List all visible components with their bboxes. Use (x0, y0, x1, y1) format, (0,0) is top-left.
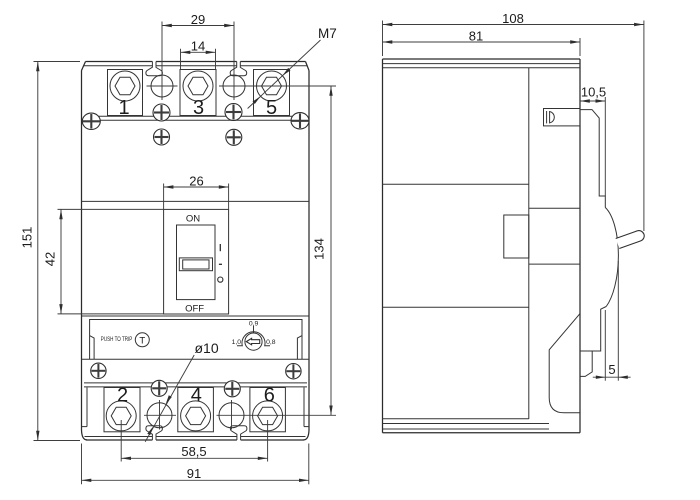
svg-text:81: 81 (469, 28, 483, 43)
svg-text:151: 151 (20, 227, 35, 249)
svg-text:1,0: 1,0 (232, 339, 242, 346)
svg-text:10,5: 10,5 (581, 85, 606, 100)
svg-text:26: 26 (189, 173, 203, 188)
svg-text:4: 4 (191, 384, 202, 406)
svg-text:108: 108 (502, 11, 524, 26)
svg-text:1: 1 (118, 97, 129, 119)
svg-text:PUSH TO TRIP: PUSH TO TRIP (101, 337, 133, 343)
svg-text:42: 42 (43, 252, 58, 266)
svg-text:ø10: ø10 (195, 340, 219, 356)
svg-text:ON: ON (186, 214, 200, 225)
svg-text:29: 29 (191, 12, 205, 27)
svg-text:91: 91 (187, 466, 201, 481)
svg-text:134: 134 (312, 238, 327, 260)
svg-text:OFF: OFF (185, 303, 204, 314)
svg-text:58,5: 58,5 (181, 444, 206, 459)
svg-text:6: 6 (264, 384, 275, 406)
svg-text:14: 14 (191, 39, 205, 54)
svg-text:3: 3 (193, 97, 204, 119)
svg-text:5: 5 (266, 97, 277, 119)
svg-text:M7: M7 (318, 26, 337, 41)
svg-text:T: T (139, 335, 145, 346)
svg-text:0,8: 0,8 (266, 339, 276, 346)
svg-text:0,9: 0,9 (249, 321, 259, 328)
svg-text:2: 2 (117, 384, 128, 406)
svg-text:5: 5 (608, 362, 615, 377)
